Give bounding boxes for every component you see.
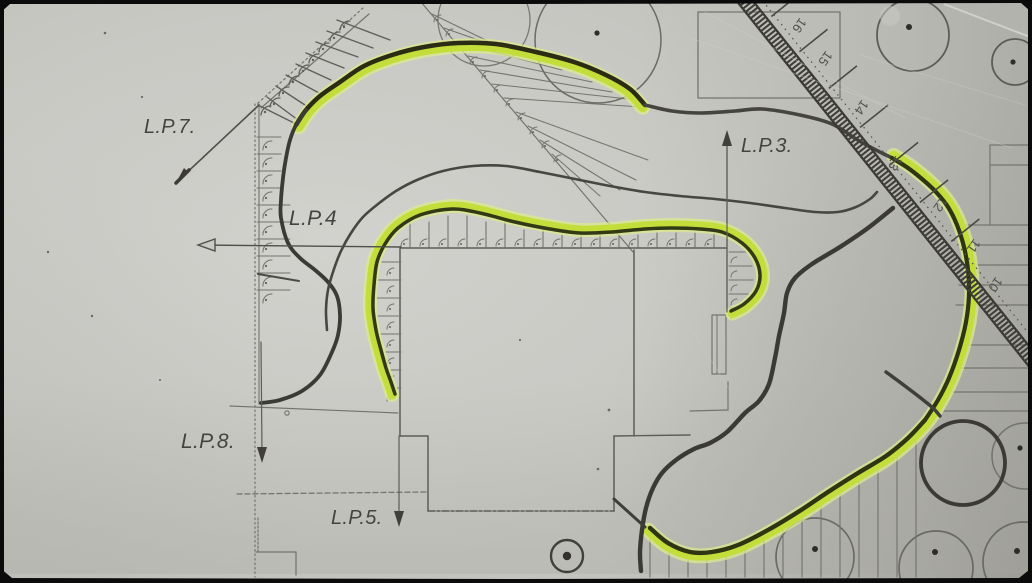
svg-text:L.P.5.: L.P.5. (331, 507, 382, 529)
svg-text:L.P.4: L.P.4 (289, 207, 337, 230)
svg-text:L.P.8.: L.P.8. (181, 430, 235, 453)
svg-text:L.P.7.: L.P.7. (144, 116, 195, 138)
svg-text:L.P.3.: L.P.3. (741, 135, 792, 157)
